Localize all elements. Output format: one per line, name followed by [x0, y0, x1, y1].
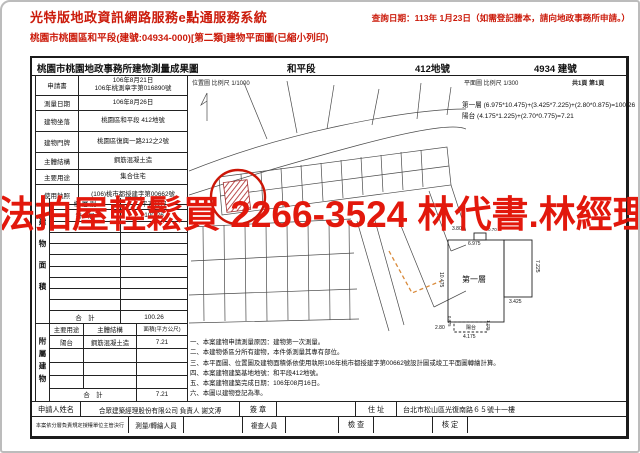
seal-space — [277, 402, 356, 417]
decision-note: 本案依分層負責規定授權單位主管決行 — [32, 417, 129, 433]
check-label: 檢 查 — [339, 417, 374, 433]
empty-row — [50, 349, 187, 362]
empty-cell — [50, 363, 84, 375]
dim-left: 10.475 — [438, 272, 444, 287]
empty-row — [50, 244, 187, 255]
empty-cell — [121, 289, 187, 299]
empty-cell — [50, 255, 121, 265]
row-value: 桃園區復興一路212之2號 — [79, 132, 187, 152]
empty-cell — [121, 278, 187, 288]
header-row: 主要用途 主體結構 面積(平方公尺) — [50, 323, 187, 336]
reviewer-space — [286, 417, 339, 433]
empty-row — [50, 300, 187, 311]
applicant-row: 申請人姓名 合眾建築經理股份有限公司 負責人 謝文溥 簽 章 住 址 台北市松山… — [32, 401, 626, 417]
empty-cell — [121, 267, 187, 277]
empty-cell — [137, 349, 187, 361]
row-label: 主要用途 — [36, 170, 79, 184]
notes-list: 一、本案建物申請測量原因：建物第一次測量。 二、本建物係區分所有建物，本件係測量… — [190, 338, 525, 400]
dim-right: 7.225 — [534, 260, 540, 273]
table-row: 建物坐落 桃園區和平段 412地號 — [36, 111, 187, 132]
empty-cell — [50, 289, 121, 299]
row-value: 106年8月26日 — [79, 96, 187, 110]
empty-cell — [50, 278, 121, 288]
empty-cell — [137, 376, 187, 388]
empty-cell — [121, 255, 187, 265]
applicant-name: 合眾建築經理股份有限公司 負責人 謝文溥 — [81, 402, 240, 417]
empty-cell — [84, 376, 137, 388]
empty-row — [50, 278, 187, 289]
note-line: 一、本案建物申請測量原因：建物第一次測量。 — [190, 338, 525, 348]
annex-side-label: 附屬建物 — [36, 323, 50, 401]
section-label: 和平段 — [287, 61, 316, 75]
dim-ext-bottom: 3.425 — [509, 299, 522, 305]
table-row: 申請書 106年8月21日 106年桃測章字第016890號 — [36, 75, 187, 96]
empty-cell — [121, 244, 187, 254]
empty-cell — [50, 244, 121, 254]
note-line: 四、本案建物建築基地地號：和平段412地號。 — [190, 369, 525, 379]
empty-cell — [84, 349, 137, 361]
col-use: 主要用途 — [50, 323, 84, 335]
note-line: 三、本平面圖、位置圖及建物面積係依使用執照106年桃市都授建字第00662號設計… — [190, 359, 525, 369]
empty-row — [50, 363, 187, 376]
area-formulas: 第一層 (6.975*10.475)+(3.425*7.225)+(2.80*0… — [462, 100, 626, 122]
empty-row — [50, 289, 187, 300]
table-row: 陽台 鋼筋混凝土造 7.21 — [50, 336, 187, 349]
annex-structure: 鋼筋混凝土造 — [84, 336, 137, 348]
dim-balcony-left: 0.875 — [447, 316, 452, 326]
empty-row — [50, 267, 187, 278]
table-row: 建物門牌 桃園區復興一路212之2號 — [36, 132, 187, 153]
dim-top: 6.975 — [468, 241, 481, 247]
formula-line: 陽台 (4.175*1.225)+(2.70*0.775)=7.21 — [462, 111, 626, 122]
dim-bottom-left: 2.80 — [435, 325, 445, 331]
table-row: 主體結構 鋼筋混凝土造 — [36, 153, 187, 170]
floor-plan: 3.80 0.70 6.975 10.475 7.225 3.425 第一層 陽… — [432, 228, 572, 343]
empty-cell — [50, 300, 121, 310]
formula-line: 第一層 (6.975*10.475)+(3.425*7.225)+(2.80*0… — [462, 100, 626, 111]
row-label: 建物門牌 — [36, 132, 79, 152]
row-value: 桃園區和平段 412地號 — [79, 111, 187, 131]
total-label: 合 計 — [50, 311, 121, 323]
plan-scale-label: 平面圖 比例尺 1/300 — [464, 78, 518, 87]
empty-cell — [50, 349, 84, 361]
watermark-text: 法拍屋輕鬆買 2266-3524 林代書.林經理 — [0, 195, 640, 236]
total-value: 100.26 — [121, 311, 187, 323]
surveyor-label: 測量/轉繪人員 — [129, 417, 184, 433]
survey-document: 桃園市桃園地政事務所建物測量成果圖 和平段 412地號 4934 建號 位置圖 … — [30, 56, 629, 439]
address-value: 台北市松山區光復南路６５號十一樓 — [397, 402, 626, 417]
approve-space — [468, 417, 626, 433]
dim-balcony-right: 1.225 — [486, 320, 491, 330]
empty-row — [50, 376, 187, 389]
applicant-label: 申請人姓名 — [32, 402, 81, 417]
row-label: 申請書 — [36, 75, 79, 95]
approve-label: 核 定 — [433, 417, 468, 433]
approval-row: 本案依分層負責規定授權單位主管決行 測量/轉繪人員 複查人員 檢 查 核 定 — [32, 416, 626, 433]
annex-area: 7.21 — [137, 336, 187, 348]
reviewer-label: 複查人員 — [243, 417, 286, 433]
page-info: 共1頁 第1頁 — [572, 78, 604, 87]
total-label: 合 計 — [50, 389, 137, 401]
check-space — [374, 417, 433, 433]
room-label: 第一層 — [462, 274, 486, 285]
table-row: 主要用途 集合住宅 — [36, 170, 187, 185]
balcony-label: 陽台 — [466, 324, 476, 331]
total-row: 合 計 100.26 — [50, 311, 187, 323]
note-line: 五、本案建物建築完成日期：106年08月16日。 — [190, 379, 525, 389]
annex-body: 主要用途 主體結構 面積(平方公尺) 陽台 鋼筋混凝土造 7.21 合 計 7.… — [50, 323, 187, 401]
col-area: 面積(平方公尺) — [137, 323, 187, 335]
empty-cell — [50, 376, 84, 388]
surveyor-space — [184, 417, 243, 433]
total-row: 合 計 7.21 — [50, 389, 187, 401]
col-structure: 主體結構 — [84, 323, 137, 335]
doc-title: 桃園市桃園地政事務所建物測量成果圖 — [37, 61, 199, 75]
annex-table: 附屬建物 主要用途 主體結構 面積(平方公尺) 陽台 鋼筋混凝土造 7.21 合… — [35, 323, 188, 402]
total-value: 7.21 — [137, 389, 187, 401]
empty-cell — [50, 267, 121, 277]
lot-number: 412地號 — [415, 61, 450, 75]
annex-use: 陽台 — [50, 336, 84, 348]
row-label: 測量日期 — [36, 96, 79, 110]
north-arrow-icon — [201, 93, 207, 121]
seal-label: 簽 章 — [240, 402, 277, 417]
row-label: 主體結構 — [36, 153, 79, 169]
query-date: 查詢日期：113年 1月23日（如需登記謄本，請向地政事務所申請。） — [372, 12, 630, 24]
empty-cell — [137, 363, 187, 375]
row-value: 集合住宅 — [79, 170, 187, 184]
empty-cell — [121, 300, 187, 310]
empty-cell — [84, 363, 137, 375]
floor-plan-drawing — [432, 228, 572, 343]
row-value: 106年8月21日 106年桃測章字第016890號 — [79, 75, 187, 95]
row-label: 建物坐落 — [36, 111, 79, 131]
empty-row — [50, 255, 187, 266]
address-label: 住 址 — [356, 402, 397, 417]
row-value: 鋼筋混凝土造 — [79, 153, 187, 169]
doc-title-row: 桃園市桃園地政事務所建物測量成果圖 和平段 412地號 4934 建號 — [32, 58, 626, 76]
system-header: 光特版地政資訊網路服務e點通服務系統 查詢日期：113年 1月23日（如需登記謄… — [30, 7, 634, 44]
building-info-table: 申請書 106年8月21日 106年桃測章字第016890號 測量日期 106年… — [35, 75, 188, 205]
table-row: 測量日期 106年8月26日 — [36, 96, 187, 111]
note-line: 二、本建物係區分所有建物，本件係測量其專有部位。 — [190, 348, 525, 358]
building-number: 4934 建號 — [534, 61, 577, 75]
note-line: 六、本圖以建物登記為準。 — [190, 389, 525, 399]
document-subtitle: 桃園市桃園區和平段(建號:04934-000)[第二類]建物平面圖(已縮小列印) — [30, 30, 634, 44]
